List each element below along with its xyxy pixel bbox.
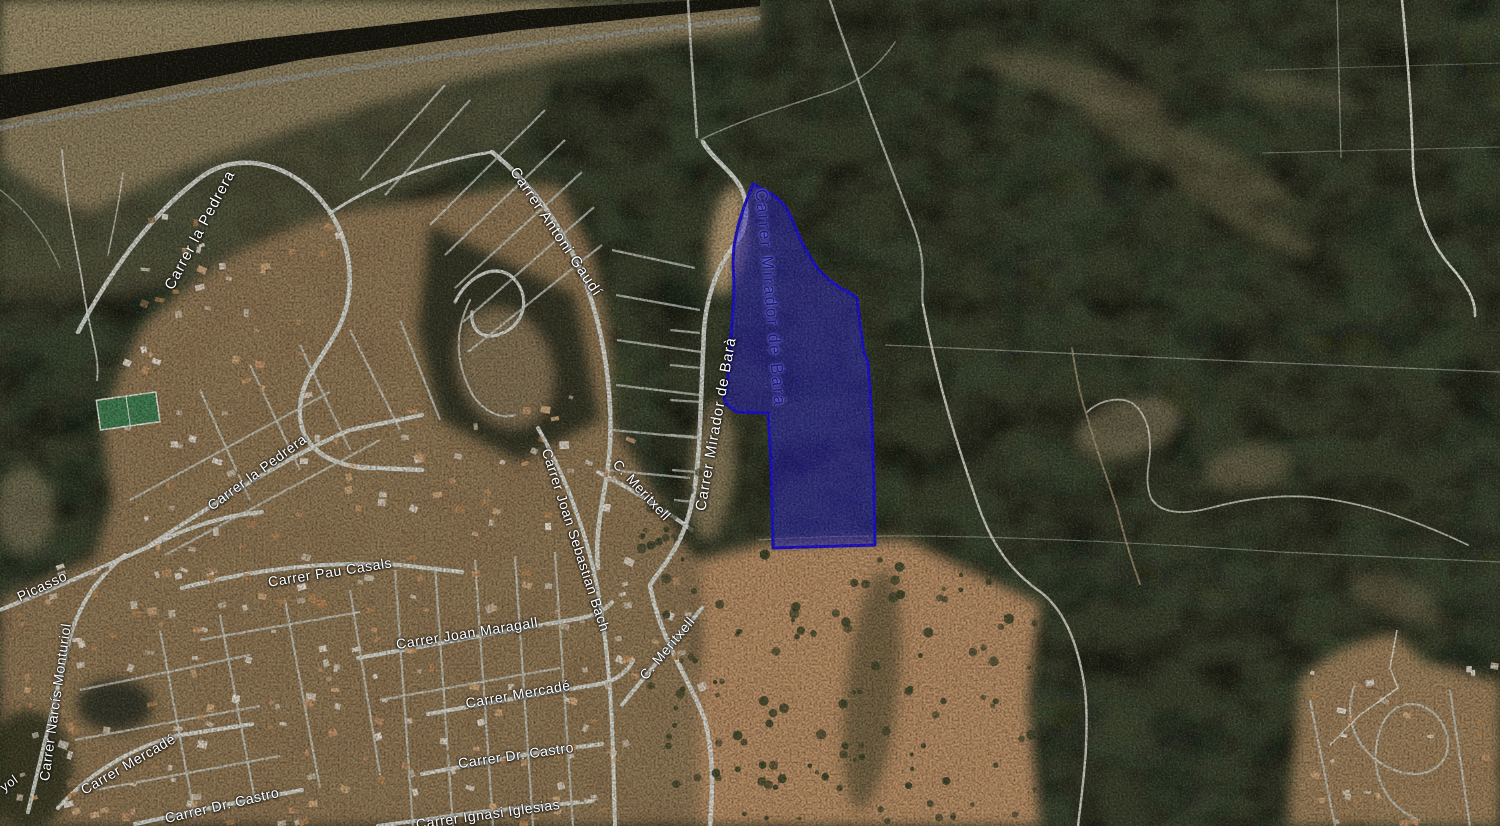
map-canvas [0, 0, 1500, 826]
satellite-map[interactable]: Carrer la PedreraCarrer Antoni GaudíCarr… [0, 0, 1500, 826]
grain-light [0, 0, 1500, 826]
